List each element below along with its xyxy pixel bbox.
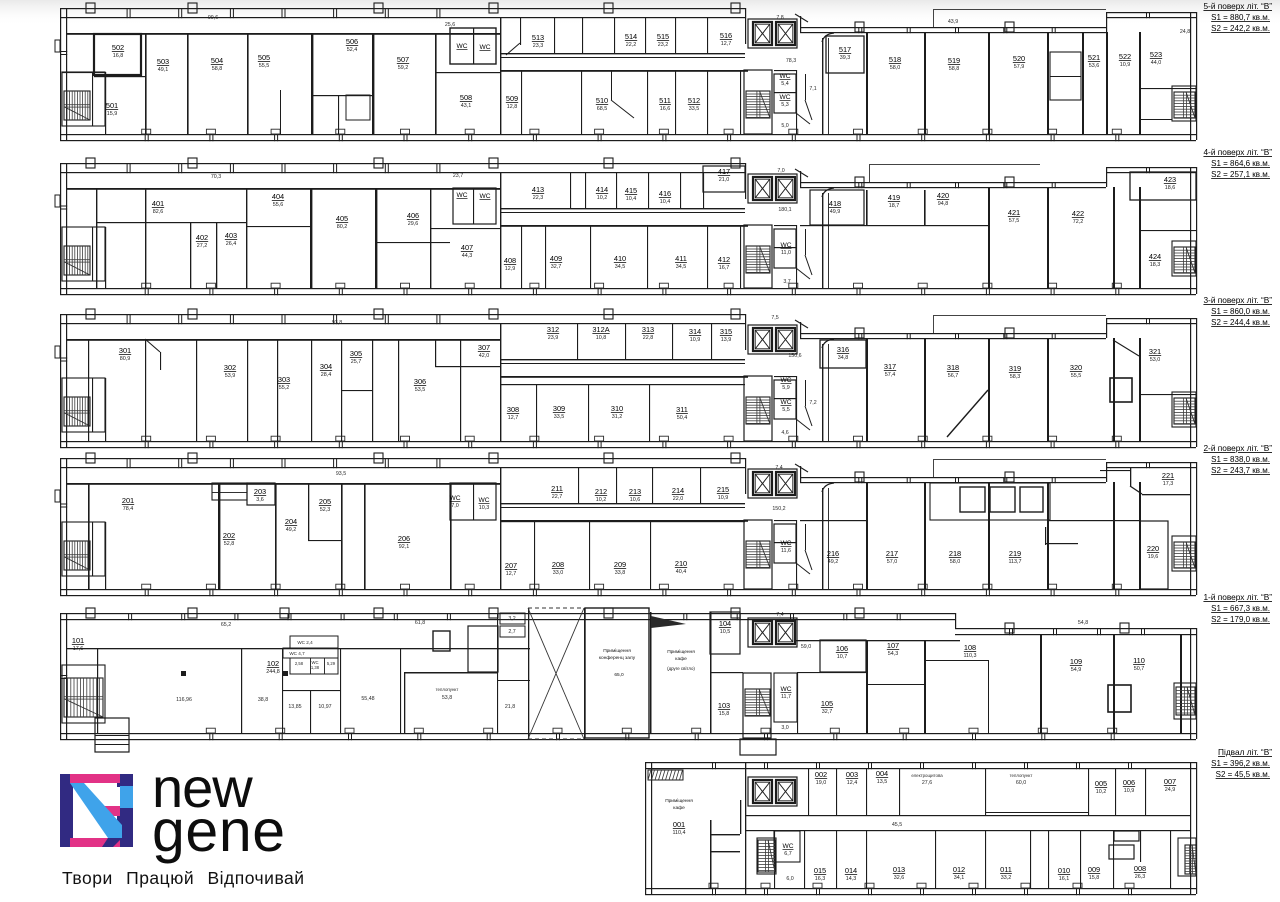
svg-text:2,7: 2,7 (508, 629, 515, 635)
svg-text:518: 518 (889, 55, 901, 64)
svg-text:15,8: 15,8 (719, 711, 730, 717)
svg-text:3,2: 3,2 (508, 616, 515, 622)
svg-text:218: 218 (949, 549, 961, 558)
svg-text:16,3: 16,3 (815, 876, 826, 882)
svg-text:24,9: 24,9 (1165, 787, 1176, 793)
svg-text:7,0: 7,0 (777, 168, 784, 174)
svg-text:107: 107 (887, 641, 899, 650)
svg-text:33,8: 33,8 (615, 570, 626, 576)
svg-text:001: 001 (673, 820, 685, 829)
svg-text:10,7: 10,7 (837, 654, 848, 660)
svg-text:10,9: 10,9 (1120, 62, 1131, 68)
svg-text:13,9: 13,9 (721, 337, 732, 343)
svg-text:314: 314 (689, 327, 701, 336)
svg-text:78,4: 78,4 (123, 506, 134, 512)
svg-text:52,3: 52,3 (320, 507, 331, 513)
svg-text:150,2: 150,2 (772, 506, 785, 512)
svg-text:WC: WC (780, 94, 791, 101)
svg-text:523: 523 (1150, 50, 1162, 59)
svg-text:310: 310 (611, 404, 623, 413)
svg-text:18,7: 18,7 (889, 203, 900, 209)
svg-text:WC: WC (781, 399, 792, 406)
svg-text:68,5: 68,5 (597, 106, 608, 112)
svg-text:2-й поверх літ. “В”: 2-й поверх літ. “В” (1203, 443, 1272, 453)
svg-text:308: 308 (507, 405, 519, 414)
svg-text:72,2: 72,2 (1073, 219, 1084, 225)
svg-text:(друге світло): (друге світло) (667, 666, 695, 671)
svg-text:413: 413 (532, 185, 544, 194)
svg-text:49,1: 49,1 (158, 67, 169, 73)
svg-text:212: 212 (595, 487, 607, 496)
svg-text:55,5: 55,5 (1071, 373, 1082, 379)
svg-text:57,0: 57,0 (887, 559, 898, 565)
svg-text:12,8: 12,8 (507, 104, 518, 110)
svg-text:WC: WC (450, 495, 461, 502)
svg-text:82,6: 82,6 (153, 209, 164, 215)
svg-text:407: 407 (461, 243, 473, 252)
svg-text:16,7: 16,7 (719, 265, 730, 271)
svg-text:318: 318 (947, 363, 959, 372)
svg-text:402: 402 (196, 233, 208, 242)
svg-text:58,8: 58,8 (212, 66, 223, 72)
svg-text:512: 512 (688, 96, 700, 105)
svg-text:50,7: 50,7 (1134, 666, 1145, 672)
svg-text:3,7: 3,7 (783, 279, 790, 285)
svg-text:28,4: 28,4 (321, 372, 332, 378)
svg-text:15,8: 15,8 (1089, 875, 1100, 881)
svg-text:5,0: 5,0 (781, 123, 788, 129)
svg-text:53,5: 53,5 (415, 387, 426, 393)
svg-text:108: 108 (964, 643, 976, 652)
svg-text:209: 209 (614, 560, 626, 569)
svg-text:93,8: 93,8 (332, 320, 342, 326)
svg-text:14,3: 14,3 (846, 876, 857, 882)
svg-text:110,3: 110,3 (963, 653, 976, 659)
svg-text:1-й поверх літ. “В”: 1-й поверх літ. “В” (1203, 592, 1272, 602)
svg-text:10,9: 10,9 (1124, 788, 1135, 794)
svg-text:10,6: 10,6 (630, 497, 641, 503)
svg-text:10,2: 10,2 (597, 195, 608, 201)
svg-text:53,9: 53,9 (225, 373, 236, 379)
svg-text:12,7: 12,7 (506, 571, 517, 577)
svg-text:34,5: 34,5 (615, 264, 626, 270)
svg-text:52,4: 52,4 (347, 47, 358, 53)
svg-text:S2 = 242,2 кв.м.: S2 = 242,2 кв.м. (1211, 24, 1270, 33)
svg-text:211: 211 (551, 484, 563, 493)
svg-text:WC: WC (479, 497, 490, 504)
svg-text:7,5: 7,5 (771, 315, 778, 321)
svg-text:313: 313 (642, 325, 654, 334)
svg-text:510: 510 (596, 96, 608, 105)
svg-text:015: 015 (814, 866, 826, 875)
svg-text:S2 = 45,5 кв.м.: S2 = 45,5 кв.м. (1216, 770, 1270, 779)
svg-text:теплопункт: теплопункт (436, 687, 459, 692)
svg-text:10,4: 10,4 (660, 199, 671, 205)
svg-text:522: 522 (1119, 52, 1131, 61)
svg-text:404: 404 (272, 192, 284, 201)
svg-text:005: 005 (1095, 779, 1107, 788)
svg-text:008: 008 (1134, 864, 1146, 873)
svg-text:57,4: 57,4 (885, 372, 896, 378)
svg-text:521: 521 (1088, 53, 1100, 62)
svg-text:012: 012 (953, 865, 965, 874)
svg-text:49,2: 49,2 (828, 559, 839, 565)
svg-text:S1 = 396,2 кв.м.: S1 = 396,2 кв.м. (1211, 759, 1270, 768)
svg-text:214: 214 (672, 486, 684, 495)
svg-text:58,0: 58,0 (950, 559, 961, 565)
svg-text:506: 506 (346, 37, 358, 46)
svg-text:12,7: 12,7 (721, 41, 732, 47)
svg-text:411: 411 (675, 254, 687, 263)
svg-text:420: 420 (937, 191, 949, 200)
svg-text:309: 309 (553, 404, 565, 413)
svg-text:405: 405 (336, 214, 348, 223)
svg-text:78,3: 78,3 (786, 58, 796, 64)
svg-text:109: 109 (1070, 657, 1082, 666)
svg-text:312: 312 (547, 325, 559, 334)
svg-text:WC 2,4: WC 2,4 (297, 640, 313, 645)
svg-text:кафе: кафе (673, 805, 685, 811)
svg-text:70,3: 70,3 (211, 174, 221, 180)
svg-text:13,5: 13,5 (877, 779, 888, 785)
svg-text:WC: WC (480, 193, 491, 200)
svg-text:110: 110 (1133, 656, 1145, 665)
svg-text:4-й поверх літ. “В”: 4-й поверх літ. “В” (1203, 147, 1272, 157)
svg-text:403: 403 (225, 231, 237, 240)
svg-text:WC: WC (480, 44, 491, 51)
svg-text:WC: WC (457, 192, 468, 199)
svg-text:WC: WC (780, 73, 791, 80)
svg-text:34,5: 34,5 (676, 264, 687, 270)
svg-text:503: 503 (157, 57, 169, 66)
svg-text:43,1: 43,1 (461, 103, 472, 109)
svg-text:3,0: 3,0 (781, 725, 788, 731)
svg-text:50,4: 50,4 (677, 415, 688, 421)
svg-text:215: 215 (717, 485, 729, 494)
svg-text:S2 = 257,1 кв.м.: S2 = 257,1 кв.м. (1211, 170, 1270, 179)
svg-text:42,0: 42,0 (479, 353, 490, 359)
svg-text:423: 423 (1164, 175, 1176, 184)
svg-text:32,6: 32,6 (894, 875, 905, 881)
svg-text:414: 414 (596, 185, 608, 194)
svg-text:93,5: 93,5 (336, 471, 346, 477)
svg-text:150,6: 150,6 (788, 353, 801, 359)
svg-text:519: 519 (948, 56, 960, 65)
svg-text:Приміщення: Приміщення (665, 798, 693, 804)
svg-text:25,7: 25,7 (351, 359, 362, 365)
svg-text:004: 004 (876, 769, 888, 778)
svg-text:6,0: 6,0 (786, 876, 793, 882)
svg-text:504: 504 (211, 56, 223, 65)
svg-text:22,3: 22,3 (533, 195, 544, 201)
svg-text:24,8: 24,8 (1180, 29, 1190, 35)
svg-text:305: 305 (350, 349, 362, 358)
svg-text:511: 511 (659, 96, 671, 105)
svg-text:27,6: 27,6 (922, 780, 932, 786)
svg-text:302: 302 (224, 363, 236, 372)
svg-text:520: 520 (1013, 54, 1025, 63)
svg-text:43,9: 43,9 (948, 19, 958, 25)
svg-text:2,58: 2,58 (295, 661, 304, 666)
svg-text:54,8: 54,8 (1078, 620, 1088, 626)
svg-text:11,0: 11,0 (781, 250, 791, 256)
svg-text:S1 = 864,6 кв.м.: S1 = 864,6 кв.м. (1211, 159, 1270, 168)
svg-text:5,3: 5,3 (781, 102, 789, 108)
svg-text:32,7: 32,7 (822, 709, 833, 715)
svg-text:65,2: 65,2 (221, 622, 231, 628)
svg-text:401: 401 (152, 199, 164, 208)
svg-text:508: 508 (460, 93, 472, 102)
svg-text:7,4: 7,4 (775, 465, 782, 471)
svg-text:59,0: 59,0 (801, 644, 811, 650)
svg-text:80,2: 80,2 (337, 224, 348, 230)
svg-text:55,2: 55,2 (279, 385, 290, 391)
svg-text:009: 009 (1088, 865, 1100, 874)
svg-text:16,1: 16,1 (1059, 876, 1070, 882)
svg-text:10,9: 10,9 (690, 337, 701, 343)
svg-text:517: 517 (839, 45, 851, 54)
svg-text:S1 = 838,0 кв.м.: S1 = 838,0 кв.м. (1211, 455, 1270, 464)
svg-text:39,3: 39,3 (840, 55, 851, 61)
svg-text:507: 507 (397, 55, 409, 64)
svg-text:17,6: 17,6 (73, 646, 84, 652)
svg-text:007: 007 (1164, 777, 1176, 786)
svg-text:15,9: 15,9 (107, 111, 118, 117)
svg-text:406: 406 (407, 211, 419, 220)
svg-text:57,5: 57,5 (1009, 218, 1020, 224)
svg-text:29,6: 29,6 (408, 221, 419, 227)
svg-text:45,5: 45,5 (892, 822, 902, 828)
svg-text:013: 013 (893, 865, 905, 874)
svg-text:102: 102 (267, 659, 279, 668)
svg-text:21,8: 21,8 (505, 704, 515, 710)
svg-text:22,7: 22,7 (552, 494, 563, 500)
svg-text:27,2: 27,2 (197, 243, 208, 249)
svg-text:5,9: 5,9 (782, 385, 790, 391)
svg-text:10,2: 10,2 (1096, 789, 1107, 795)
svg-text:011: 011 (1000, 865, 1012, 874)
svg-text:516: 516 (720, 31, 732, 40)
svg-text:10,4: 10,4 (626, 196, 637, 202)
svg-text:505: 505 (258, 53, 270, 62)
svg-text:54,3: 54,3 (888, 651, 899, 657)
svg-text:S2 = 243,7 кв.м.: S2 = 243,7 кв.м. (1211, 466, 1270, 475)
svg-text:WC: WC (781, 377, 792, 384)
svg-text:416: 416 (659, 189, 671, 198)
svg-text:S2 = 179,0 кв.м.: S2 = 179,0 кв.м. (1211, 615, 1270, 624)
svg-text:201: 201 (122, 496, 134, 505)
svg-text:216: 216 (827, 549, 839, 558)
svg-text:4,6: 4,6 (781, 430, 788, 436)
svg-text:49,2: 49,2 (286, 527, 297, 533)
svg-text:002: 002 (815, 770, 827, 779)
svg-text:22,2: 22,2 (626, 42, 637, 48)
svg-text:5,4: 5,4 (781, 81, 789, 87)
svg-text:Твори Працюй Відпочивай: Твори Працюй Відпочивай (62, 868, 305, 888)
svg-text:106: 106 (836, 644, 848, 653)
svg-text:33,0: 33,0 (553, 570, 564, 576)
svg-text:60,0: 60,0 (1016, 780, 1026, 786)
svg-text:502: 502 (112, 43, 124, 52)
svg-text:58,8: 58,8 (949, 66, 960, 72)
svg-text:59,2: 59,2 (398, 65, 409, 71)
svg-text:52,8: 52,8 (224, 541, 235, 547)
svg-text:53,8: 53,8 (442, 695, 452, 701)
svg-text:WC: WC (457, 43, 468, 50)
svg-text:S1 = 860,0 кв.м.: S1 = 860,0 кв.м. (1211, 307, 1270, 316)
svg-text:412: 412 (718, 255, 730, 264)
svg-text:303: 303 (278, 375, 290, 384)
svg-text:33,5: 33,5 (689, 106, 700, 112)
svg-text:207: 207 (505, 561, 517, 570)
svg-text:110,4: 110,4 (672, 830, 685, 836)
svg-text:S2 = 244,4 кв.м.: S2 = 244,4 кв.м. (1211, 318, 1270, 327)
svg-text:501: 501 (106, 101, 118, 110)
svg-text:65,0: 65,0 (614, 672, 624, 678)
svg-text:408: 408 (504, 256, 516, 265)
svg-text:311: 311 (676, 405, 688, 414)
svg-text:7,2: 7,2 (809, 400, 816, 406)
svg-text:11,6: 11,6 (781, 548, 791, 554)
svg-text:18,6: 18,6 (1165, 185, 1176, 191)
svg-text:204: 204 (285, 517, 297, 526)
svg-text:94,8: 94,8 (938, 201, 949, 207)
svg-text:205: 205 (319, 497, 331, 506)
svg-text:513: 513 (532, 33, 544, 42)
svg-text:213: 213 (629, 487, 641, 496)
svg-text:10,2: 10,2 (596, 497, 607, 503)
svg-text:12,7: 12,7 (508, 415, 519, 421)
svg-text:56,7: 56,7 (948, 373, 959, 379)
svg-text:34,1: 34,1 (954, 875, 965, 881)
svg-text:3,6: 3,6 (256, 497, 264, 503)
svg-text:010: 010 (1058, 866, 1070, 875)
svg-text:17,3: 17,3 (1163, 481, 1174, 487)
svg-text:180,1: 180,1 (778, 207, 791, 213)
svg-text:31,2: 31,2 (612, 414, 623, 420)
svg-text:221: 221 (1162, 471, 1174, 480)
svg-text:509: 509 (506, 94, 518, 103)
svg-text:206: 206 (398, 534, 410, 543)
svg-text:44,3: 44,3 (462, 253, 473, 259)
svg-text:13,85: 13,85 (288, 704, 301, 710)
svg-text:33,5: 33,5 (554, 414, 565, 420)
svg-text:409: 409 (550, 254, 562, 263)
svg-text:92,1: 92,1 (399, 544, 410, 550)
svg-text:25,6: 25,6 (445, 22, 455, 28)
svg-text:424: 424 (1149, 252, 1161, 261)
svg-text:317: 317 (884, 362, 896, 371)
svg-text:417: 417 (718, 167, 730, 176)
svg-text:57,9: 57,9 (1014, 64, 1025, 70)
svg-text:gene: gene (152, 798, 286, 864)
svg-text:203: 203 (254, 487, 266, 496)
svg-text:кафе: кафе (675, 656, 687, 662)
svg-text:55,6: 55,6 (273, 202, 284, 208)
svg-text:116,96: 116,96 (176, 697, 192, 703)
svg-text:244,8: 244,8 (266, 669, 280, 675)
svg-text:104: 104 (719, 619, 731, 628)
svg-text:421: 421 (1008, 208, 1020, 217)
svg-text:5,29: 5,29 (327, 661, 336, 666)
svg-text:49,9: 49,9 (830, 209, 841, 215)
svg-text:208: 208 (552, 560, 564, 569)
svg-text:515: 515 (657, 32, 669, 41)
svg-text:99,6: 99,6 (208, 15, 218, 21)
svg-text:26,4: 26,4 (226, 241, 237, 247)
svg-text:415: 415 (625, 186, 637, 195)
svg-text:55,48: 55,48 (361, 696, 374, 702)
svg-text:80,9: 80,9 (120, 356, 131, 362)
svg-text:23,9: 23,9 (548, 335, 559, 341)
svg-text:WC: WC (781, 540, 792, 547)
svg-text:7,1: 7,1 (809, 86, 816, 92)
svg-text:101: 101 (72, 636, 84, 645)
svg-text:12,4: 12,4 (847, 780, 858, 786)
svg-text:22,8: 22,8 (643, 335, 654, 341)
svg-text:220: 220 (1147, 544, 1159, 553)
svg-text:320: 320 (1070, 363, 1082, 372)
svg-text:219: 219 (1009, 549, 1021, 558)
svg-text:34,8: 34,8 (838, 355, 849, 361)
svg-text:315: 315 (720, 327, 732, 336)
svg-text:7,4: 7,4 (776, 612, 783, 618)
svg-text:10,3: 10,3 (479, 505, 490, 511)
svg-text:теплопункт: теплопункт (1010, 773, 1033, 778)
svg-text:11,7: 11,7 (781, 694, 791, 700)
svg-text:422: 422 (1072, 209, 1084, 218)
svg-text:Приміщення: Приміщення (667, 649, 695, 655)
svg-text:40,4: 40,4 (676, 569, 687, 575)
svg-text:конференц залу: конференц залу (599, 655, 636, 661)
svg-text:5,5: 5,5 (782, 407, 790, 413)
svg-text:16,8: 16,8 (113, 53, 124, 59)
svg-text:WC: WC (781, 686, 792, 693)
svg-text:5-й поверх літ. “В”: 5-й поверх літ. “В” (1203, 1, 1272, 11)
svg-text:014: 014 (845, 866, 857, 875)
svg-text:23,7: 23,7 (453, 173, 463, 179)
svg-text:6,7: 6,7 (784, 851, 792, 857)
svg-text:S1 = 667,3 кв.м.: S1 = 667,3 кв.м. (1211, 604, 1270, 613)
svg-text:Підвал літ. “В”: Підвал літ. “В” (1218, 747, 1272, 757)
svg-text:316: 316 (837, 345, 849, 354)
svg-text:23,3: 23,3 (533, 43, 544, 49)
svg-text:514: 514 (625, 32, 637, 41)
svg-text:33,2: 33,2 (1001, 875, 1012, 881)
svg-text:105: 105 (821, 699, 833, 708)
svg-text:26,3: 26,3 (1135, 874, 1146, 880)
svg-text:53,0: 53,0 (1150, 357, 1161, 363)
svg-text:21,0: 21,0 (719, 177, 730, 183)
svg-text:61,8: 61,8 (415, 620, 425, 626)
svg-text:418: 418 (829, 199, 841, 208)
svg-text:006: 006 (1123, 778, 1135, 787)
svg-text:301: 301 (119, 346, 131, 355)
svg-text:електрощитова: електрощитова (911, 773, 943, 778)
svg-text:44,0: 44,0 (1151, 60, 1162, 66)
svg-text:217: 217 (886, 549, 898, 558)
svg-text:55,5: 55,5 (259, 63, 270, 69)
svg-text:WC: WC (781, 242, 792, 249)
svg-text:306: 306 (414, 377, 426, 386)
svg-text:307: 307 (478, 343, 490, 352)
svg-text:7,8: 7,8 (776, 15, 783, 21)
svg-text:113,7: 113,7 (1008, 559, 1021, 565)
svg-text:WC: WC (783, 843, 794, 850)
svg-text:10,97: 10,97 (318, 704, 331, 710)
svg-text:12,9: 12,9 (505, 266, 516, 272)
svg-text:S1 = 880,7 кв.м.: S1 = 880,7 кв.м. (1211, 13, 1270, 22)
